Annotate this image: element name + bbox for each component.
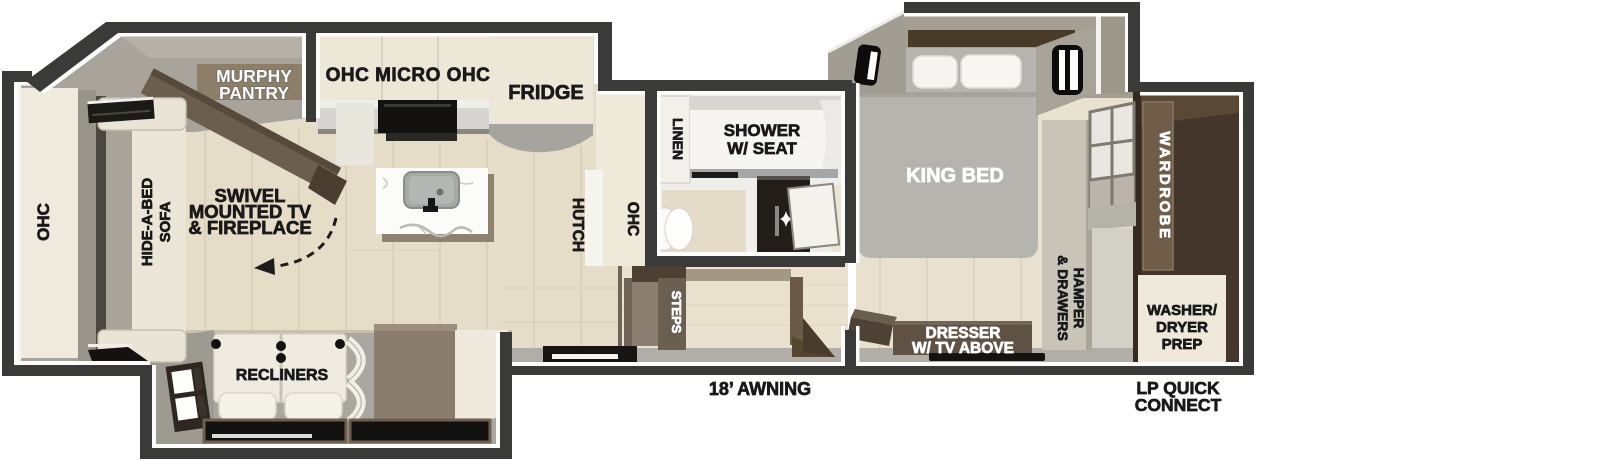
svg-text:WASHER/: WASHER/ [1147, 302, 1218, 319]
svg-text:HIDE-A-BED: HIDE-A-BED [139, 178, 156, 266]
svg-text:HAMPER: HAMPER [1071, 268, 1087, 329]
svg-text:PANTRY: PANTRY [219, 83, 289, 103]
svg-text:W/ SEAT: W/ SEAT [727, 139, 797, 158]
svg-text:CONNECT: CONNECT [1135, 395, 1222, 415]
svg-text:& DRAWERS: & DRAWERS [1055, 255, 1071, 341]
svg-text:OHC: OHC [34, 203, 53, 241]
svg-text:STEPS: STEPS [669, 291, 684, 334]
svg-text:OHC MICRO OHC: OHC MICRO OHC [326, 65, 491, 86]
svg-text:OHC: OHC [624, 202, 641, 236]
svg-text:WARDROBE: WARDROBE [1156, 131, 1173, 240]
svg-text:W/ TV ABOVE: W/ TV ABOVE [912, 340, 1014, 357]
svg-text:HUTCH: HUTCH [569, 198, 586, 252]
svg-text:SHOWER: SHOWER [724, 121, 801, 140]
svg-text:& FIREPLACE: & FIREPLACE [188, 217, 311, 238]
svg-text:RECLINERS: RECLINERS [236, 367, 329, 384]
svg-text:DRYER: DRYER [1156, 319, 1208, 336]
svg-text:KING BED: KING BED [906, 165, 1004, 187]
svg-text:LINEN: LINEN [670, 118, 686, 160]
svg-text:18’ AWNING: 18’ AWNING [709, 379, 811, 399]
svg-text:SOFA: SOFA [157, 201, 174, 242]
svg-text:PREP: PREP [1162, 336, 1203, 353]
svg-text:FRIDGE: FRIDGE [508, 82, 584, 104]
